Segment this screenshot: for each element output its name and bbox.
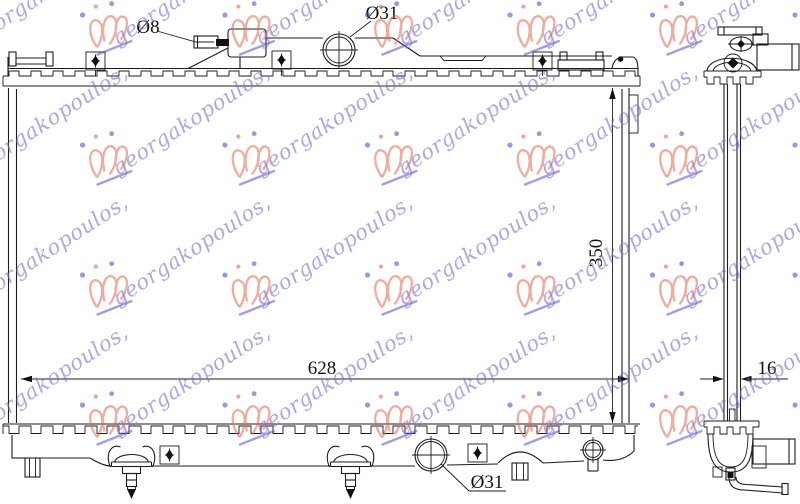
side-bottom-tank xyxy=(708,434,795,495)
bleed-nipple-dot xyxy=(618,56,624,62)
mount-pin xyxy=(327,446,373,499)
filler-neck-circle xyxy=(320,31,358,69)
drain-plug-circle xyxy=(412,436,450,474)
side-top-fitting xyxy=(707,27,799,72)
mounting-clip-icon xyxy=(86,52,105,70)
radiator-technical-drawing: georgakopoulos, xyxy=(0,0,800,504)
outlet-pipe xyxy=(752,439,795,468)
mount-pin xyxy=(108,446,154,499)
mounting-clip-icon xyxy=(468,444,487,462)
mounting-clip-icon xyxy=(160,446,179,464)
bottom-hump xyxy=(498,452,543,463)
mounting-clip-icon xyxy=(272,51,291,69)
watermark-stamp xyxy=(791,60,800,186)
radiator-diagram-page: georgakopoulos, xyxy=(0,0,800,504)
label-drain-diameter: Ø31 xyxy=(471,472,504,493)
inlet-pipe xyxy=(757,44,799,70)
watermark-stamp xyxy=(648,0,800,56)
side-top-flange xyxy=(704,71,761,84)
top-left-bracket xyxy=(9,52,53,66)
drain-pipe xyxy=(729,477,788,495)
bottom-left-foot xyxy=(25,458,40,477)
watermark-stamp xyxy=(791,190,800,316)
bottom-tab xyxy=(512,463,528,480)
watermark-layer xyxy=(0,0,800,446)
outlet-circle xyxy=(580,437,606,471)
leader-filler xyxy=(350,21,371,37)
top-tank-tabs xyxy=(558,52,604,70)
dim-drain: Ø31 xyxy=(441,464,506,493)
top-tank-recess xyxy=(440,56,486,61)
watermark-stamp xyxy=(791,320,800,446)
bottom-tank xyxy=(12,435,634,499)
